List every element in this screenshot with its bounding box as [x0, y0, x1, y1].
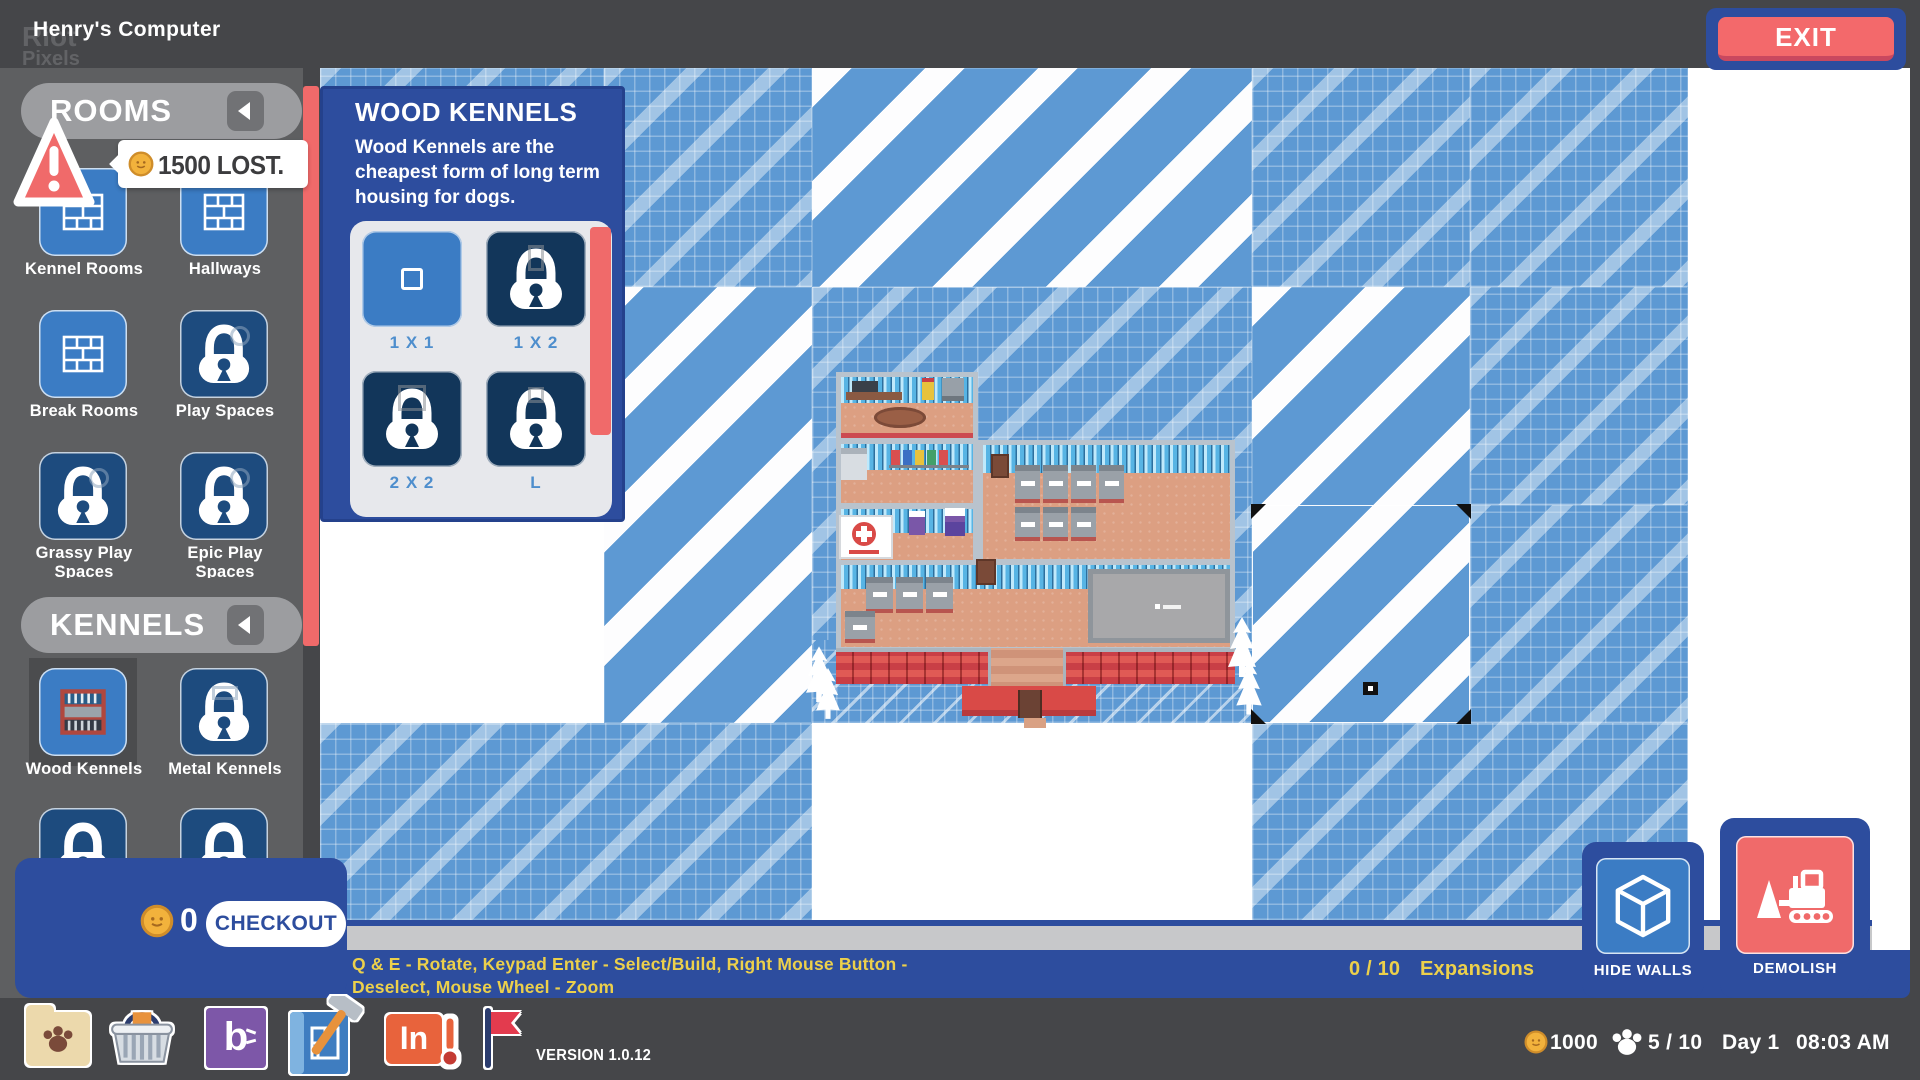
size-option-1x1[interactable]: [362, 231, 462, 327]
b-logo-glyph: b: [224, 1015, 248, 1059]
sidebar-item-break-rooms[interactable]: [39, 310, 127, 398]
build-sidebar: ROOMS Kennel Rooms Hallways Break Rooms …: [0, 68, 303, 1080]
controls-hint-line2: Deselect, Mouse Wheel - Zoom: [352, 976, 614, 999]
sidebar-item-grassy-play-spaces[interactable]: [39, 452, 127, 540]
map-plot[interactable]: [1470, 68, 1688, 287]
thermometer-icon: [438, 1014, 462, 1068]
size-option-label: 2 X 2: [362, 473, 462, 493]
shelf-purple: [909, 511, 925, 535]
game-screen: Q & E - Rotate, Keypad Enter - Select/Bu…: [0, 0, 1920, 1080]
map-plot[interactable]: [604, 68, 812, 287]
basket-icon: [108, 1006, 176, 1068]
title-bar: Riot Pixels Henry's Computer EXIT: [0, 0, 1920, 68]
taskbar: b In: [0, 998, 1920, 1080]
build-mode-button[interactable]: [284, 996, 376, 1080]
sidebar-item-label: Wood Kennels: [18, 760, 150, 779]
sidebar-item-wood-kennels[interactable]: [39, 668, 127, 756]
b-app-button[interactable]: b: [206, 1008, 266, 1068]
toast-message: 1500 LOST.: [158, 150, 284, 181]
kennel-hall: [978, 440, 1235, 564]
cart-total: 0: [180, 902, 198, 939]
plot-marker-icon: [1363, 682, 1378, 695]
wood-kennels-popup: WOOD KENNELS Wood Kennels are the cheape…: [320, 86, 625, 522]
map-plot[interactable]: [320, 723, 812, 935]
kennel-unit: [1043, 507, 1068, 541]
hide-walls-button[interactable]: HIDE WALLS: [1582, 842, 1704, 998]
collapse-kennels-button[interactable]: [227, 605, 264, 645]
sidebar-item-label: Epic Play Spaces: [159, 544, 291, 578]
popup-description: Wood Kennels are the cheapest form of lo…: [355, 135, 607, 210]
lobby: [836, 560, 1235, 652]
map-plot[interactable]: [1470, 505, 1688, 723]
entrance-door: [1018, 690, 1042, 718]
paw-icon: [43, 1025, 73, 1053]
kennels-section-header: KENNELS: [21, 597, 302, 653]
shop-basket-button[interactable]: [108, 1006, 176, 1073]
bulldozer-icon: [1755, 866, 1835, 924]
table: [874, 407, 926, 428]
selection-handle[interactable]: [1251, 504, 1266, 519]
kennel-unit: [1099, 465, 1124, 503]
coin-icon: [1524, 1030, 1548, 1054]
sidebar-item-label: Grassy Play Spaces: [18, 544, 150, 578]
size-option-label: 1 X 2: [486, 333, 586, 353]
kennel-unit: [1015, 465, 1040, 503]
sidebar-item-label: Break Rooms: [18, 402, 150, 421]
sidebar-item-metal-kennels[interactable]: [180, 668, 268, 756]
coin-icon: [140, 904, 174, 938]
map-plot[interactable]: [1252, 68, 1470, 287]
expansions-count: 0 / 10: [1349, 958, 1400, 981]
map-plot[interactable]: [1470, 287, 1688, 505]
map-plot[interactable]: [812, 68, 1252, 287]
kennel-unit: [1071, 465, 1096, 503]
size-option-label: L: [486, 473, 586, 493]
size-option-1x2[interactable]: [486, 231, 586, 327]
selection-handle[interactable]: [1251, 709, 1266, 724]
pine-tree-icon: [816, 668, 840, 724]
kennel-unit: [1043, 465, 1068, 503]
kennel-unit: [845, 611, 875, 643]
brick-wall: [1066, 652, 1235, 684]
flag-button[interactable]: [478, 1006, 522, 1079]
dogs-folder-button[interactable]: [26, 1012, 90, 1066]
size-option-l[interactable]: [486, 371, 586, 467]
sideboard: [846, 392, 902, 400]
size-option-2x2[interactable]: [362, 371, 462, 467]
sidebar-item-label: Metal Kennels: [159, 760, 291, 779]
selection-handle[interactable]: [1456, 504, 1471, 519]
hide-walls-label: HIDE WALLS: [1582, 962, 1704, 979]
sidebar-item-play-spaces[interactable]: [180, 310, 268, 398]
kennel-unit: [1071, 507, 1096, 541]
paw-icon: [1612, 1028, 1642, 1056]
window-title: Henry's Computer: [33, 18, 221, 42]
kennel-unit: [1015, 507, 1040, 541]
coins-lost-toast: 1500 LOST.: [118, 140, 308, 188]
entrance-walkway: [988, 648, 1066, 690]
cabinet: [976, 559, 996, 585]
poster: [922, 378, 934, 400]
clock: 08:03 AM: [1796, 1031, 1890, 1055]
brick-wall: [836, 652, 988, 684]
door-step: [1024, 718, 1046, 728]
size-option-label: 1 X 1: [362, 333, 462, 353]
checkout-panel: 0 CHECKOUT: [15, 858, 347, 998]
coins-balance: 1000: [1550, 1031, 1598, 1055]
shelf: [942, 378, 964, 401]
coin-icon: [128, 151, 154, 177]
cabinet: [991, 454, 1009, 478]
dog-capacity: 5 / 10: [1648, 1031, 1702, 1055]
patio: [1088, 569, 1230, 643]
popup-title: WOOD KENNELS: [355, 97, 577, 128]
day-counter: Day 1: [1722, 1031, 1780, 1055]
shelf-purple: [945, 508, 965, 536]
counter: [841, 448, 867, 480]
selected-plot[interactable]: [1252, 505, 1470, 723]
demolish-button[interactable]: DEMOLISH: [1720, 818, 1870, 998]
blueprint-hammer-icon: [284, 996, 376, 1080]
medical-sign: [839, 515, 893, 559]
in-app-button[interactable]: In: [386, 1014, 464, 1066]
sidebar-item-label: Kennel Rooms: [18, 260, 150, 279]
brick-icon: [62, 335, 104, 373]
scrollbar-corner: [1872, 926, 1910, 950]
map-plot[interactable]: [604, 287, 812, 723]
brick-icon: [203, 193, 245, 231]
selection-handle[interactable]: [1456, 709, 1471, 724]
popup-scrollbar[interactable]: [590, 227, 611, 435]
kennel-unit: [866, 577, 893, 613]
controls-hint-line1: Q & E - Rotate, Keypad Enter - Select/Bu…: [352, 953, 908, 976]
cube-icon: [1612, 873, 1674, 939]
wood-kennel-icon: [57, 687, 109, 737]
checkout-button[interactable]: CHECKOUT: [206, 901, 346, 947]
sidebar-item-label: Play Spaces: [159, 402, 291, 421]
sidebar-item-epic-play-spaces[interactable]: [180, 452, 268, 540]
in-logo-glyph: In: [400, 1020, 428, 1056]
exit-button[interactable]: EXIT: [1718, 17, 1894, 61]
exit-button-frame: EXIT: [1706, 8, 1906, 70]
kennels-header-label: KENNELS: [50, 607, 205, 642]
kennel-unit: [896, 577, 923, 613]
version-label: VERSION 1.0.12: [536, 1047, 651, 1065]
flag-icon: [478, 1006, 522, 1074]
collapse-rooms-button[interactable]: [227, 91, 264, 131]
expansions-label: Expansions: [1420, 958, 1534, 981]
sidebar-item-label: Hallways: [159, 260, 291, 279]
size-options-panel: 1 X 1 1 X 2 2 X 2 L: [350, 221, 612, 517]
kennel-unit: [926, 577, 953, 613]
demolish-label: DEMOLISH: [1720, 960, 1870, 977]
square-icon: [401, 268, 423, 290]
warning-icon: [12, 112, 96, 218]
